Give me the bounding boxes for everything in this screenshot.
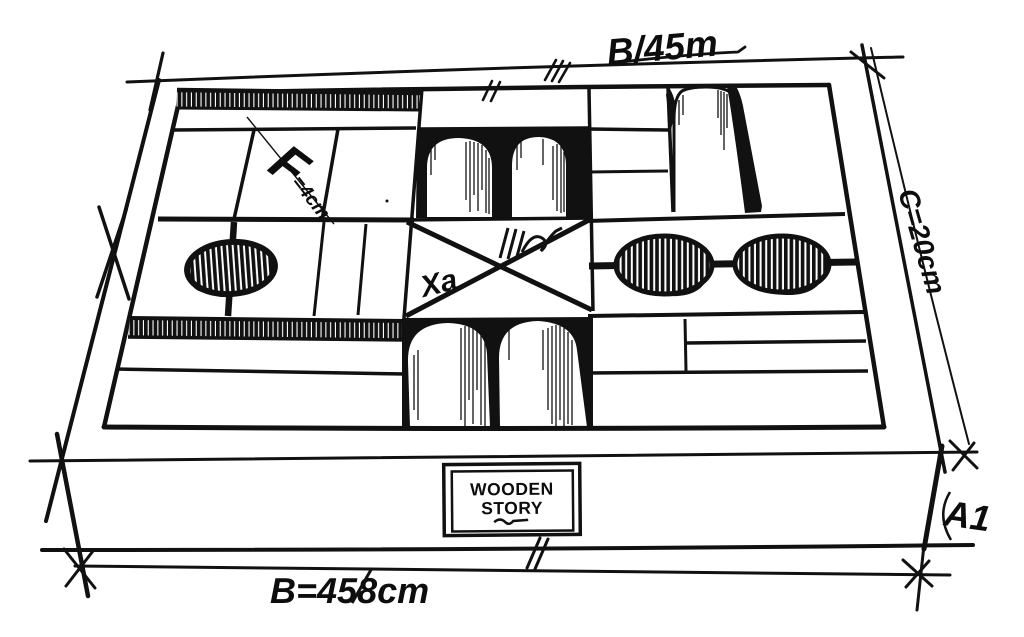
svg-text:B=458cm: B=458cm [270, 570, 429, 611]
svg-text:STORY: STORY [481, 498, 543, 519]
svg-text:WOODEN: WOODEN [470, 479, 554, 500]
svg-text:A1: A1 [941, 492, 993, 539]
